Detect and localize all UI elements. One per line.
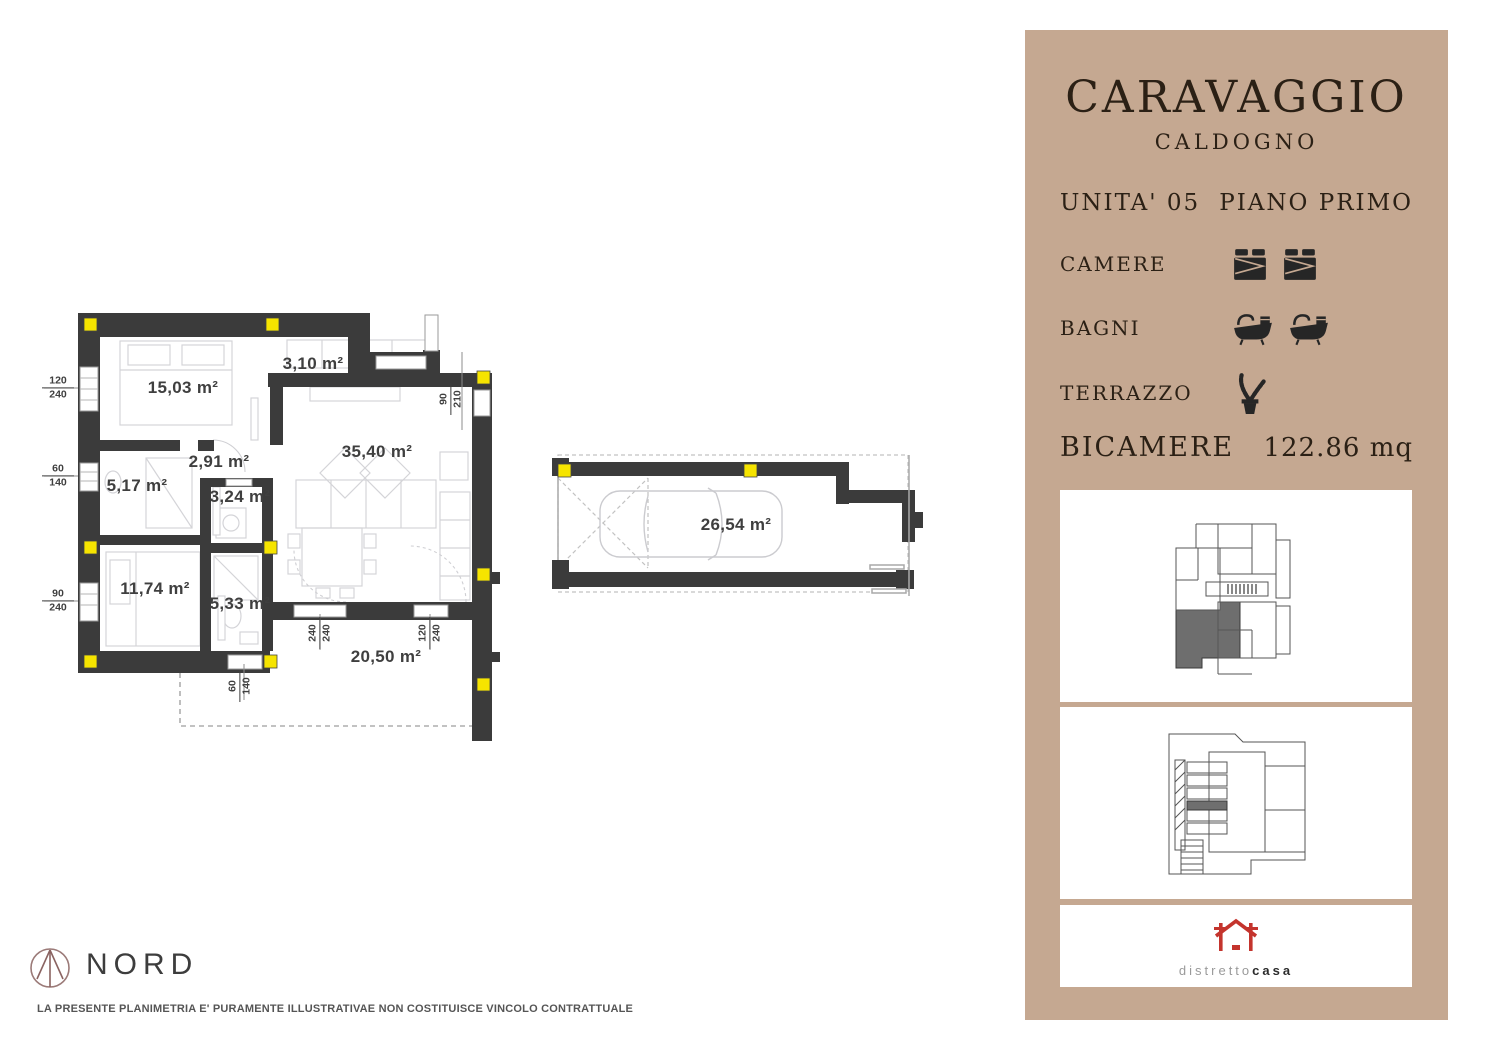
bagni-icons bbox=[1232, 309, 1330, 347]
project-location: CALDOGNO bbox=[1025, 130, 1448, 154]
room-area-label: 3,10 m² bbox=[283, 354, 344, 374]
dimension-label: 60140 bbox=[42, 462, 74, 489]
unit-label: UNITA' 05 bbox=[1060, 190, 1200, 216]
door-arcs bbox=[213, 440, 466, 602]
keyplan-site-svg bbox=[1151, 722, 1321, 884]
terrazzo-label: TERRAZZO bbox=[1060, 381, 1232, 405]
room-area-label: 26,54 m² bbox=[701, 515, 771, 535]
agency-name-light: distretto bbox=[1179, 963, 1252, 978]
dimension-label: 120240 bbox=[42, 374, 74, 401]
type-size-row: BICAMERE 122.86 mq bbox=[1060, 432, 1413, 463]
dimension-label: 60140 bbox=[226, 670, 253, 702]
plant-icon bbox=[1232, 371, 1268, 415]
agency-logo-text: distrettocasa bbox=[1179, 963, 1293, 978]
page: 15,03 m² 3,10 m² 2,91 m² 5,17 m² 3,24 m²… bbox=[0, 0, 1485, 1050]
room-area-label: 35,40 m² bbox=[342, 442, 412, 462]
north-compass-icon bbox=[31, 949, 69, 987]
floor-plan-drawing bbox=[0, 0, 1010, 1050]
room-area-label: 3,24 m² bbox=[210, 487, 271, 507]
dimension-label: 240240 bbox=[306, 617, 333, 649]
keyplan-floor-thumbnail bbox=[1060, 490, 1412, 702]
feature-row-terrazzo: TERRAZZO bbox=[1060, 368, 1413, 418]
room-area-label: 11,74 m² bbox=[120, 579, 190, 599]
north-label: NORD bbox=[86, 948, 198, 982]
camere-label: CAMERE bbox=[1060, 252, 1232, 276]
room-area-label: 5,17 m² bbox=[107, 476, 168, 496]
camere-icons bbox=[1232, 246, 1318, 282]
agency-name-bold: casa bbox=[1252, 963, 1293, 978]
room-area-label: 15,03 m² bbox=[148, 378, 218, 398]
bagni-label: BAGNI bbox=[1060, 316, 1232, 340]
info-panel: CARAVAGGIO CALDOGNO UNITA' 05 PIANO PRIM… bbox=[1025, 30, 1448, 1020]
floor-label: PIANO PRIMO bbox=[1219, 190, 1413, 216]
bed-icon bbox=[1282, 246, 1318, 282]
project-title: CARAVAGGIO bbox=[1025, 72, 1448, 123]
bed-icon bbox=[1232, 246, 1268, 282]
bathtub-icon bbox=[1232, 309, 1274, 347]
unit-floor-row: UNITA' 05 PIANO PRIMO bbox=[1060, 190, 1413, 216]
dimension-label: 90210 bbox=[437, 383, 464, 415]
bathtub-icon bbox=[1288, 309, 1330, 347]
apartment-walls bbox=[78, 313, 500, 741]
terrazzo-icons bbox=[1232, 371, 1268, 415]
dimension-label: 120240 bbox=[416, 617, 443, 649]
dimension-label: 90240 bbox=[42, 587, 74, 614]
agency-house-icon bbox=[1208, 915, 1264, 957]
feature-row-camere: CAMERE bbox=[1060, 242, 1413, 286]
keyplan-site-thumbnail bbox=[1060, 707, 1412, 899]
disclaimer-text: LA PRESENTE PLANIMETRIA E' PURAMENTE ILL… bbox=[37, 1003, 633, 1015]
agency-logo-box: distrettocasa bbox=[1060, 905, 1412, 987]
room-area-label: 5,33 m² bbox=[210, 594, 271, 614]
keyplan-floor-svg bbox=[1156, 510, 1316, 682]
size-label: 122.86 mq bbox=[1263, 433, 1413, 463]
feature-row-bagni: BAGNI bbox=[1060, 304, 1413, 352]
room-area-label: 2,91 m² bbox=[189, 452, 250, 472]
type-label: BICAMERE bbox=[1060, 432, 1234, 463]
room-area-label: 20,50 m² bbox=[351, 647, 421, 667]
